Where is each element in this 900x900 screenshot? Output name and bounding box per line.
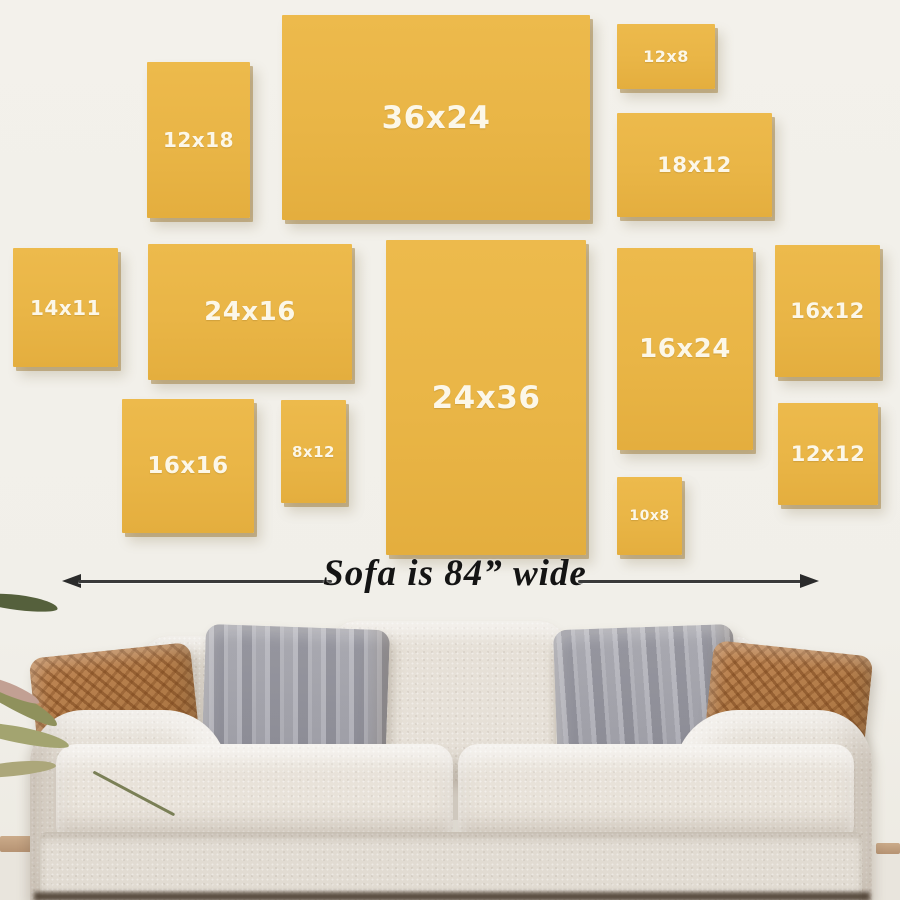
canvas-box-12x18: 12x18: [147, 62, 250, 218]
canvas-box-24x36: 24x36: [386, 240, 586, 555]
canvas-box-24x16: 24x16: [148, 244, 352, 380]
canvas-box-12x8: 12x8: [617, 24, 715, 89]
canvas-size-label: 16x12: [790, 299, 865, 323]
sofa-seat-cushion-left: [56, 744, 453, 840]
dimension-line-left: [78, 580, 332, 583]
canvas-box-16x24: 16x24: [617, 248, 753, 450]
canvas-size-guide-graphic: 12x1836x2412x818x1214x1124x1616x168x1224…: [0, 0, 900, 900]
canvas-size-label: 12x8: [643, 47, 689, 66]
sofa-seat-cushion-right: [458, 744, 854, 840]
canvas-box-16x12: 16x12: [775, 245, 880, 377]
canvas-size-label: 14x11: [30, 296, 101, 320]
sofa-base-skirt: [40, 832, 862, 900]
canvas-size-label: 8x12: [292, 443, 335, 461]
sofa-width-note: Sofa is 84” wide: [300, 552, 610, 595]
canvas-box-36x24: 36x24: [282, 15, 590, 220]
canvas-size-label: 12x18: [163, 128, 234, 152]
sofa-floor-shadow: [34, 892, 870, 900]
canvas-box-8x12: 8x12: [281, 400, 346, 503]
canvas-size-label: 16x16: [147, 453, 228, 479]
canvas-size-label: 36x24: [382, 100, 491, 136]
dimension-line-right: [578, 580, 802, 583]
canvas-size-label: 18x12: [657, 153, 732, 177]
canvas-size-label: 12x12: [791, 442, 866, 466]
canvas-size-label: 10x8: [629, 508, 669, 524]
arrowhead-right-icon: [800, 574, 819, 588]
canvas-box-12x12: 12x12: [778, 403, 878, 505]
canvas-box-10x8: 10x8: [617, 477, 682, 555]
canvas-size-label: 16x24: [639, 334, 731, 364]
canvas-size-label: 24x16: [204, 297, 296, 327]
canvas-box-16x16: 16x16: [122, 399, 254, 533]
canvas-box-18x12: 18x12: [617, 113, 772, 217]
canvas-box-14x11: 14x11: [13, 248, 118, 367]
baseboard-right: [876, 843, 900, 854]
canvas-size-label: 24x36: [432, 380, 541, 416]
